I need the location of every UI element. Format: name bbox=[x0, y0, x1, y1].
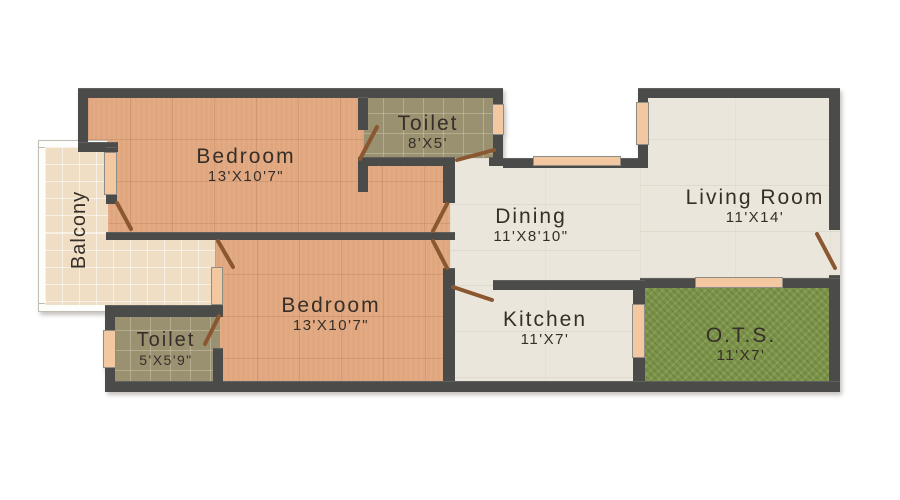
door-leaf-bedroom1-balcony bbox=[117, 203, 131, 229]
door-leaf-bedroom1-toilet1 bbox=[360, 127, 377, 159]
door-leaf-bedroom2-entry bbox=[433, 241, 447, 268]
floor-plan-canvas: Bedroom 13'X10'7" Toilet 8'X5' Living Ro… bbox=[0, 0, 900, 500]
door-leaf-bedroom2-balcony bbox=[218, 241, 233, 267]
door-leaf-bedroom1-entry bbox=[433, 204, 447, 231]
door-leaf-toilet2 bbox=[205, 316, 219, 344]
floor-plan: Bedroom 13'X10'7" Toilet 8'X5' Living Ro… bbox=[0, 0, 900, 500]
door-leaf-main-entrance bbox=[817, 234, 835, 268]
door-leaf-kitchen bbox=[453, 287, 492, 300]
doors-layer bbox=[0, 0, 900, 500]
door-leaf-toilet1-dining bbox=[457, 150, 494, 160]
